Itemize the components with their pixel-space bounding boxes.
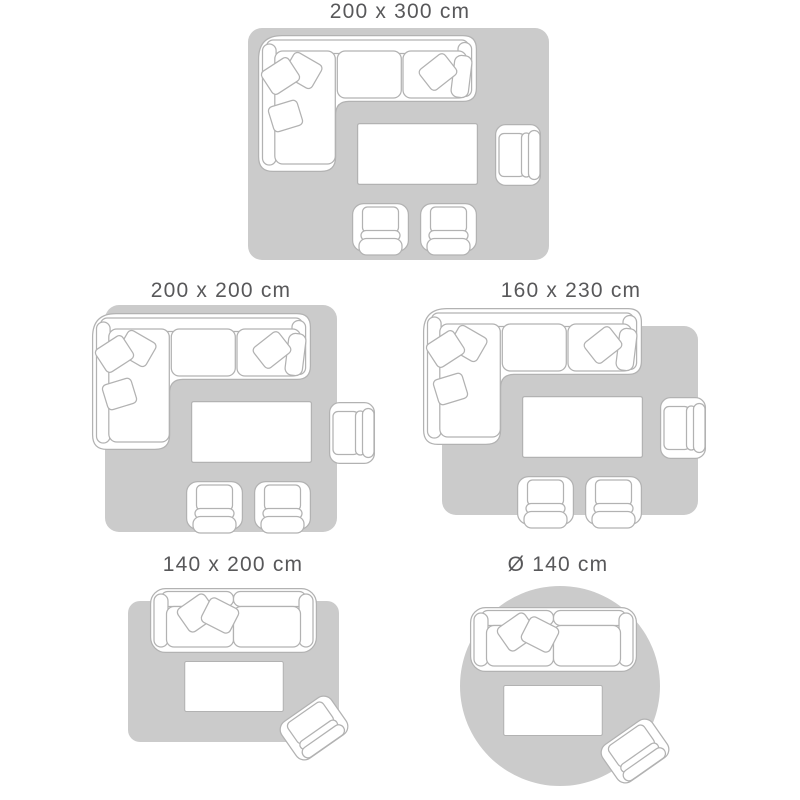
two-seater-sofa	[151, 589, 317, 653]
coffee-table	[185, 661, 284, 711]
rug-size-guide: 200 x 300 cm 200 x 200 cm 160 x 230 cm 1…	[0, 0, 800, 800]
two-seater-sofa	[471, 608, 637, 672]
size-label-200x300: 200 x 300 cm	[330, 0, 470, 24]
diagram-diameter-140	[440, 580, 680, 792]
coffee-table	[504, 685, 603, 735]
diagram-200x200	[80, 300, 390, 540]
diagram-160x230	[410, 300, 720, 535]
diagram-140x200	[120, 580, 360, 780]
diagram-200x300	[240, 25, 560, 265]
size-label-140x200: 140 x 200 cm	[163, 553, 303, 577]
size-label-diameter-140: Ø 140 cm	[508, 553, 609, 577]
